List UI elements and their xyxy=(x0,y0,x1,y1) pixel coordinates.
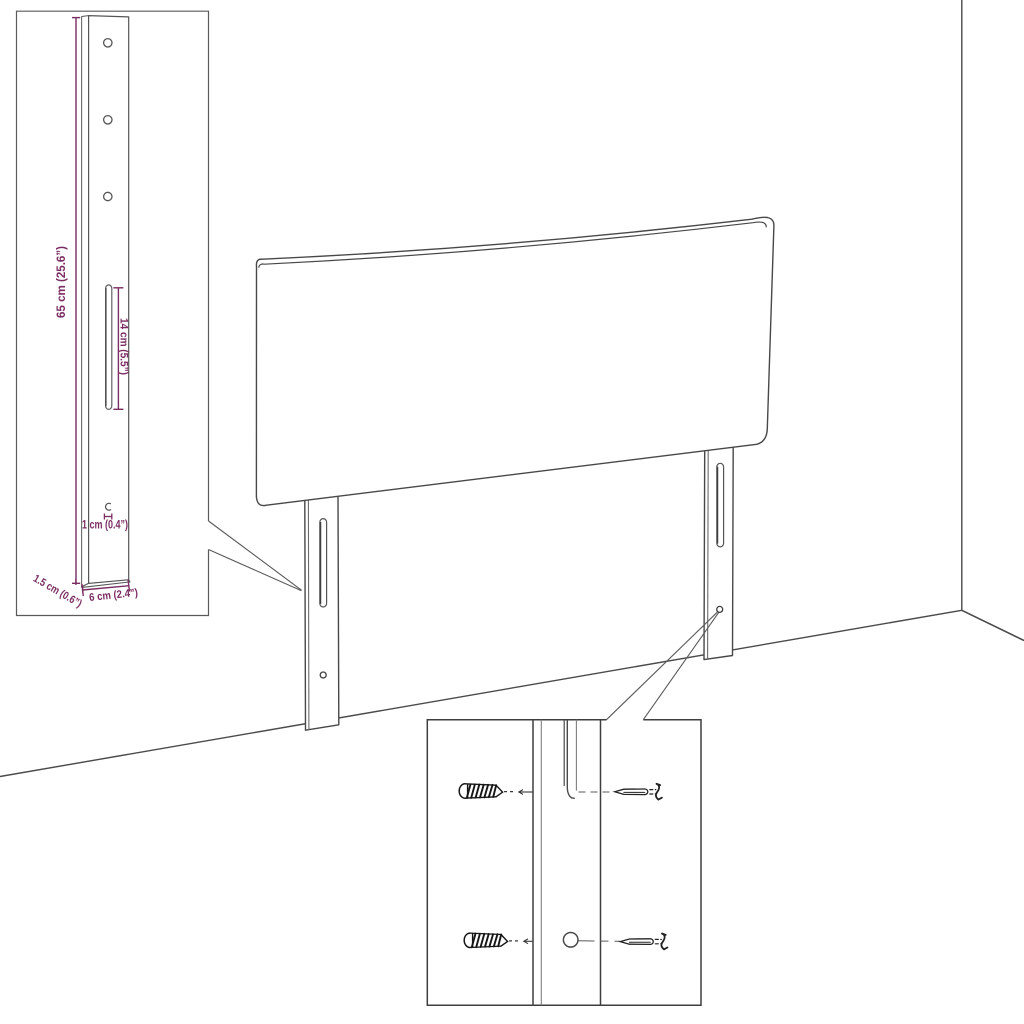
svg-text:1 cm (0.4”): 1 cm (0.4”) xyxy=(82,520,128,532)
svg-text:14 cm (5.5”): 14 cm (5.5”) xyxy=(118,318,130,375)
svg-text:65 cm (25.6”): 65 cm (25.6”) xyxy=(56,246,68,318)
